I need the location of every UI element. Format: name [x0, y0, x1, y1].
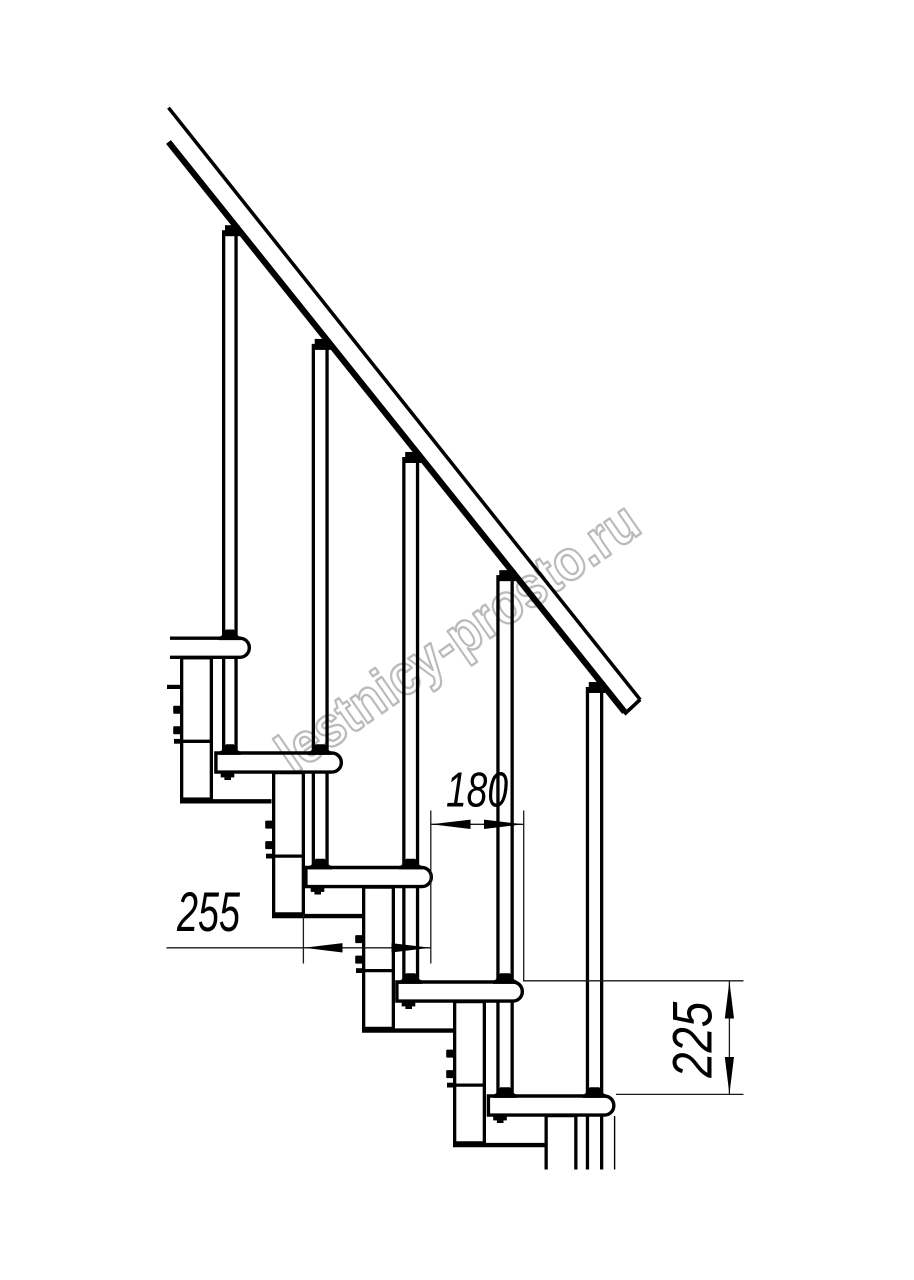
- svg-text:225: 225: [661, 1001, 724, 1079]
- svg-text:255: 255: [176, 880, 240, 943]
- svg-text:180: 180: [446, 764, 508, 818]
